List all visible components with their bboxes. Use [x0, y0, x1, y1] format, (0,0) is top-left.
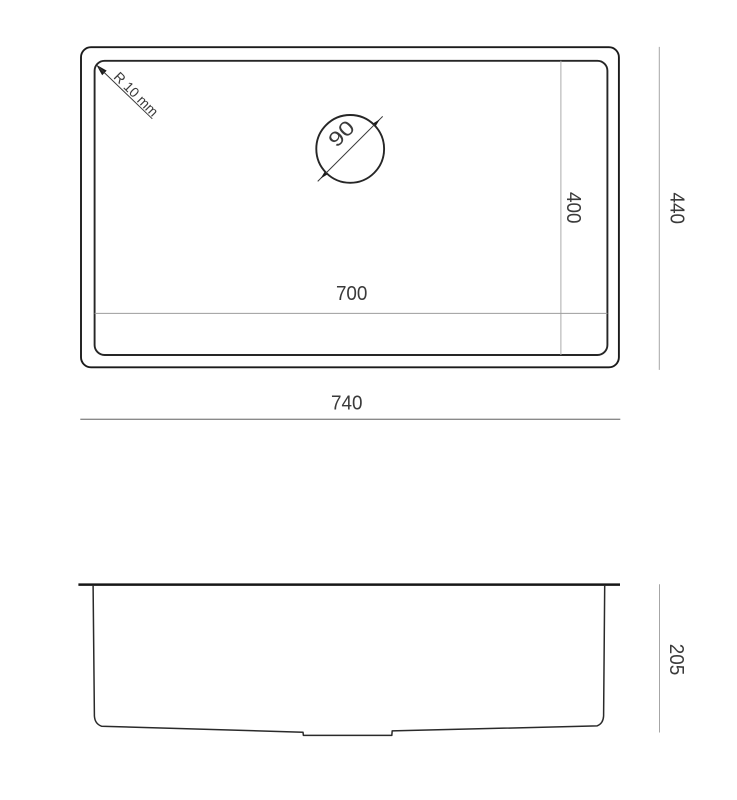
svg-text:205: 205	[665, 644, 687, 676]
svg-text:440: 440	[666, 193, 688, 225]
svg-text:740: 740	[331, 392, 363, 414]
svg-text:400: 400	[562, 192, 584, 224]
svg-text:700: 700	[336, 283, 368, 305]
